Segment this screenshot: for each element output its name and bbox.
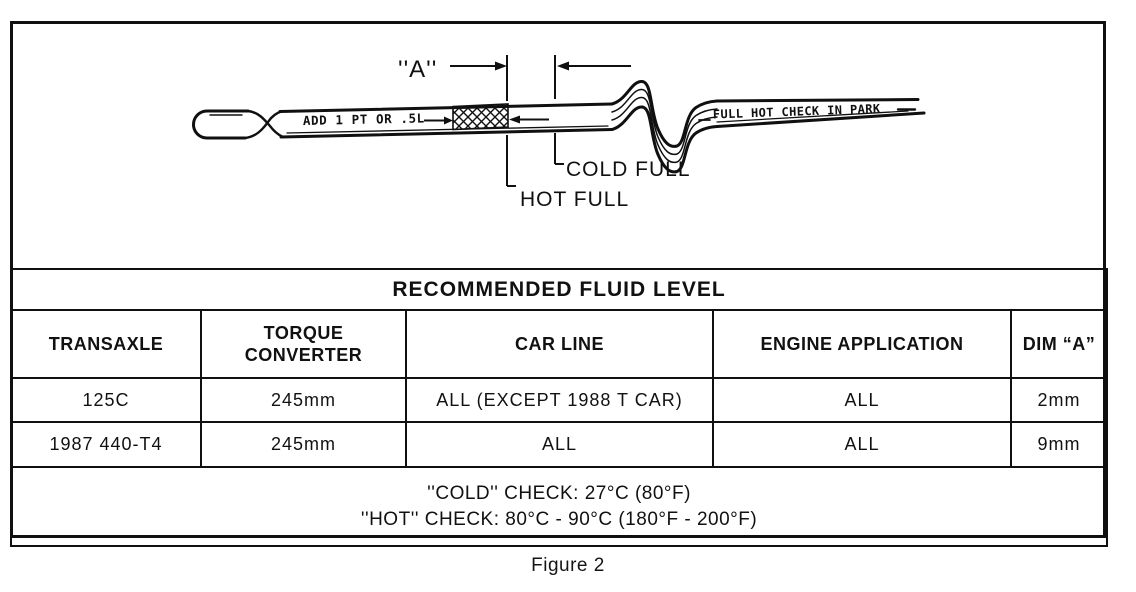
cell-car-line: ALL (EXCEPT 1988 T CAR) — [406, 378, 713, 422]
dipstick-add-text: ADD 1 PT OR .5L — [303, 110, 425, 128]
cell-car-line: ALL — [406, 422, 713, 467]
col-header-torque-converter: TORQUE CONVERTER — [201, 310, 406, 378]
check-temperature-notes: ''COLD'' CHECK: 27°C (80°F) ''HOT'' CHEC… — [11, 467, 1107, 546]
table-row: 125C 245mm ALL (EXCEPT 1988 T CAR) ALL 2… — [11, 378, 1107, 422]
hot-full-label: HOT FULL — [520, 188, 629, 211]
col-header-label: DIM “A” — [1023, 334, 1096, 354]
crosshatch-add-zone — [453, 104, 508, 130]
cell-dim-a: 2mm — [1011, 378, 1107, 422]
hot-full-arrow-icon — [509, 116, 549, 124]
table-row: 1987 440-T4 245mm ALL ALL 9mm — [11, 422, 1107, 467]
dipstick-diagram: ADD 1 PT OR .5L FULL HOT CHECK IN PA — [0, 0, 1136, 266]
col-header-label: CAR LINE — [515, 334, 604, 354]
cell-transaxle: 1987 440-T4 — [11, 422, 201, 467]
dim-a-label: ''A'' — [398, 56, 437, 83]
figure-caption: Figure 2 — [0, 555, 1136, 577]
col-header-label: TRANSAXLE — [49, 333, 164, 356]
table-header-row: TRANSAXLE TORQUE CONVERTER CAR LINE ENGI… — [11, 310, 1107, 378]
table-notes-row: ''COLD'' CHECK: 27°C (80°F) ''HOT'' CHEC… — [11, 467, 1107, 546]
col-header-car-line: CAR LINE — [406, 310, 713, 378]
cell-engine-application: ALL — [713, 422, 1011, 467]
manual-page: ADD 1 PT OR .5L FULL HOT CHECK IN PA — [0, 0, 1136, 592]
dim-arrow-right-icon — [495, 62, 507, 71]
cell-dim-a: 9mm — [1011, 422, 1107, 467]
col-header-engine-application: ENGINE APPLICATION — [713, 310, 1011, 378]
fluid-level-table: RECOMMENDED FLUID LEVEL TRANSAXLE TORQUE… — [10, 268, 1108, 547]
add-mark-arrow-icon — [424, 117, 453, 125]
cold-check-note: ''COLD'' CHECK: 27°C (80°F) — [16, 481, 1102, 507]
cell-torque-converter: 245mm — [201, 422, 406, 467]
cell-engine-application: ALL — [713, 378, 1011, 422]
table-title-row: RECOMMENDED FLUID LEVEL — [11, 269, 1107, 310]
cell-torque-converter: 245mm — [201, 378, 406, 422]
cold-full-label: COLD FULL — [566, 158, 691, 181]
col-header-dim-a: DIM “A” — [1011, 310, 1107, 378]
col-header-label: ENGINE APPLICATION — [760, 334, 963, 354]
col-header-transaxle: TRANSAXLE — [11, 310, 201, 378]
col-header-label: TORQUE CONVERTER — [224, 322, 384, 367]
cell-transaxle: 125C — [11, 378, 201, 422]
hot-check-note: ''HOT'' CHECK: 80°C - 90°C (180°F - 200°… — [16, 507, 1102, 533]
dipstick-handle-loop — [194, 111, 283, 138]
dim-arrow-left-icon — [557, 62, 569, 71]
table-title: RECOMMENDED FLUID LEVEL — [11, 269, 1107, 310]
